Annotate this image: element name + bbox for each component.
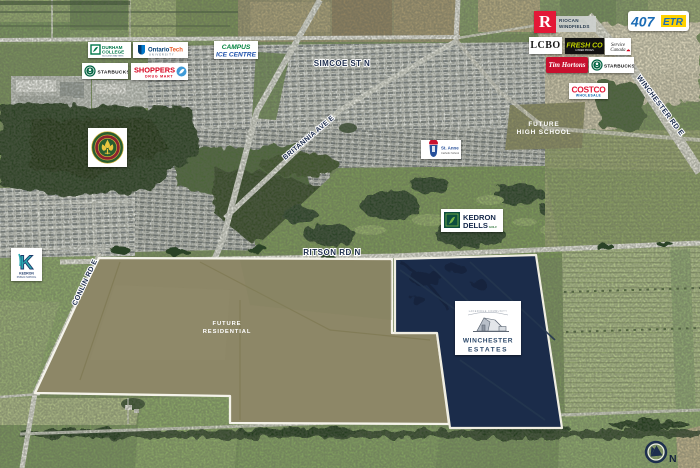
svg-text:COLLEGE: COLLEGE — [102, 50, 124, 55]
svg-text:DRUG MART: DRUG MART — [145, 74, 173, 78]
svg-text:CAMPUS: CAMPUS — [222, 44, 251, 51]
svg-text:UNIVERSITY: UNIVERSITY — [149, 53, 175, 57]
svg-text:SHOPPERS: SHOPPERS — [134, 66, 175, 75]
svg-text:SUCCESS MATTERS: SUCCESS MATTERS — [102, 55, 124, 58]
svg-text:Canada: Canada — [610, 48, 626, 53]
svg-text:DELLS GOLF: DELLS GOLF — [463, 221, 497, 230]
svg-text:St. Anne: St. Anne — [441, 146, 459, 151]
svg-text:LOWER PRICES: LOWER PRICES — [575, 49, 594, 52]
svg-text:FUTURE: FUTURE — [213, 321, 242, 327]
svg-text:ETR: ETR — [663, 17, 684, 28]
svg-text:KEDRON: KEDRON — [19, 272, 34, 276]
svg-text:SIMCOE ST N: SIMCOE ST N — [314, 59, 370, 68]
svg-text:PUBLIC SCHOOL: PUBLIC SCHOOL — [17, 276, 37, 279]
svg-text:HIGH SCHOOL: HIGH SCHOOL — [517, 129, 572, 136]
svg-text:WHOLESALE: WHOLESALE — [576, 94, 602, 98]
svg-text:ICE CENTRE: ICE CENTRE — [216, 51, 257, 58]
svg-text:407: 407 — [630, 14, 656, 30]
svg-text:WINCHESTER: WINCHESTER — [463, 338, 513, 345]
svg-text:STARBUCKS: STARBUCKS — [604, 63, 634, 68]
svg-text:ESTATES: ESTATES — [468, 347, 508, 354]
svg-text:STARBUCKS: STARBUCKS — [98, 69, 129, 75]
svg-text:Catholic School: Catholic School — [441, 151, 459, 155]
svg-text:FUTURE: FUTURE — [528, 121, 559, 128]
svg-text:RESIDENTIAL: RESIDENTIAL — [203, 329, 252, 335]
svg-text:LAKERIDGE COMMUNITY: LAKERIDGE COMMUNITY — [469, 310, 508, 313]
svg-text:N: N — [669, 453, 677, 465]
svg-text:RITSON RD N: RITSON RD N — [303, 248, 361, 257]
